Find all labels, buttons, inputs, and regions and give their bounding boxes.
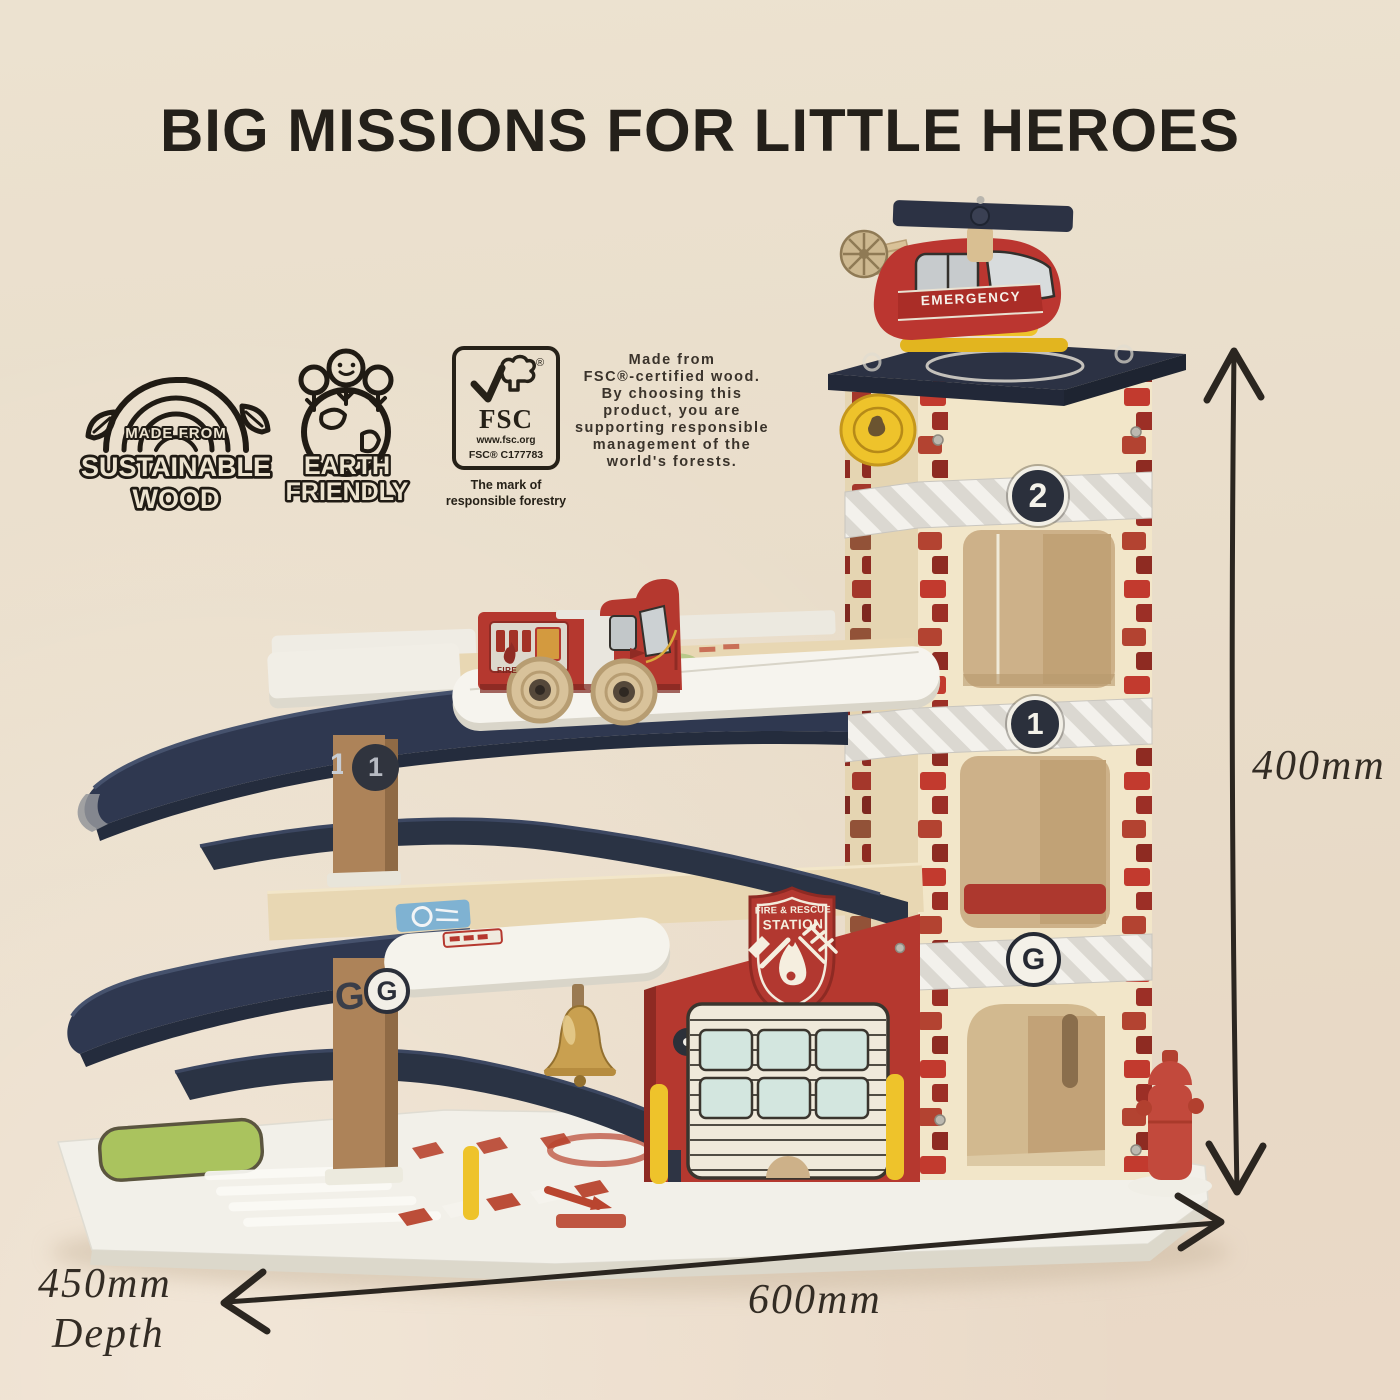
badge-sustainable-middle: SUSTAINABLE [81,452,271,482]
dimension-depth-value: 450mm [38,1260,172,1308]
fsc-logo-icon: ® [468,354,544,406]
pillar-letter-g: G [334,975,366,1020]
badge-sustainable-wood: MADE FROM SUSTAINABLE WOOD [78,338,278,518]
dimension-height-label: 400mm [1252,742,1386,790]
station-shield-text: FIRE & RESCUE STATION [747,905,839,933]
dimension-width-label: 600mm [748,1276,882,1324]
station-shield-line2: STATION [747,916,839,933]
fsc-url: www.fsc.org [476,435,535,446]
fsc-description-line: supporting responsible [558,420,786,437]
floor-badge-g: G [1006,932,1061,987]
fsc-caption-line: The mark of [438,477,574,493]
pillar-label-1-partial: 1 [330,748,343,788]
fsc-description-line: By choosing this [558,386,786,403]
badge-earth-top: EARTH [304,452,390,480]
fsc-description: Made from FSC®-certified wood. By choosi… [558,352,786,471]
fsc-acronym: FSC [479,406,533,433]
pillar-badge-1: 1 [352,744,399,791]
floor-badge-1: 1 [1007,696,1063,752]
fsc-registered-mark: ® [536,357,544,369]
fsc-license: FSC® C177783 [469,449,543,461]
pillar-badge-g: G [364,968,410,1014]
station-shield-line1: FIRE & RESCUE [747,905,839,918]
badge-earth-bottom: FRIENDLY [286,478,409,506]
truck-fire-label: FIRE [497,666,517,675]
fsc-description-line: management of the [558,437,786,454]
fsc-caption-line: responsible forestry [438,493,574,509]
badge-sustainable-bottom: WOOD [133,484,220,514]
floor-light [0,0,1400,1400]
dimension-depth-word: Depth [52,1310,165,1358]
fsc-certification-box: ® FSC www.fsc.org FSC® C177783 [452,346,560,470]
fsc-description-line: Made from [558,352,786,369]
page-title: BIG MISSIONS FOR LITTLE HEROES [0,96,1400,165]
fsc-description-line: world's forests. [558,454,786,471]
fsc-description-line: product, you are [558,403,786,420]
fsc-caption: The mark of responsible forestry [438,477,574,510]
product-infographic: BIG MISSIONS FOR LITTLE HEROES MADE FROM… [0,0,1400,1400]
badge-sustainable-top: MADE FROM [125,425,227,442]
badge-earth-friendly: EARTH FRIENDLY [274,340,422,508]
floor-badge-2: 2 [1008,466,1068,526]
fsc-description-line: FSC®-certified wood. [558,369,786,386]
